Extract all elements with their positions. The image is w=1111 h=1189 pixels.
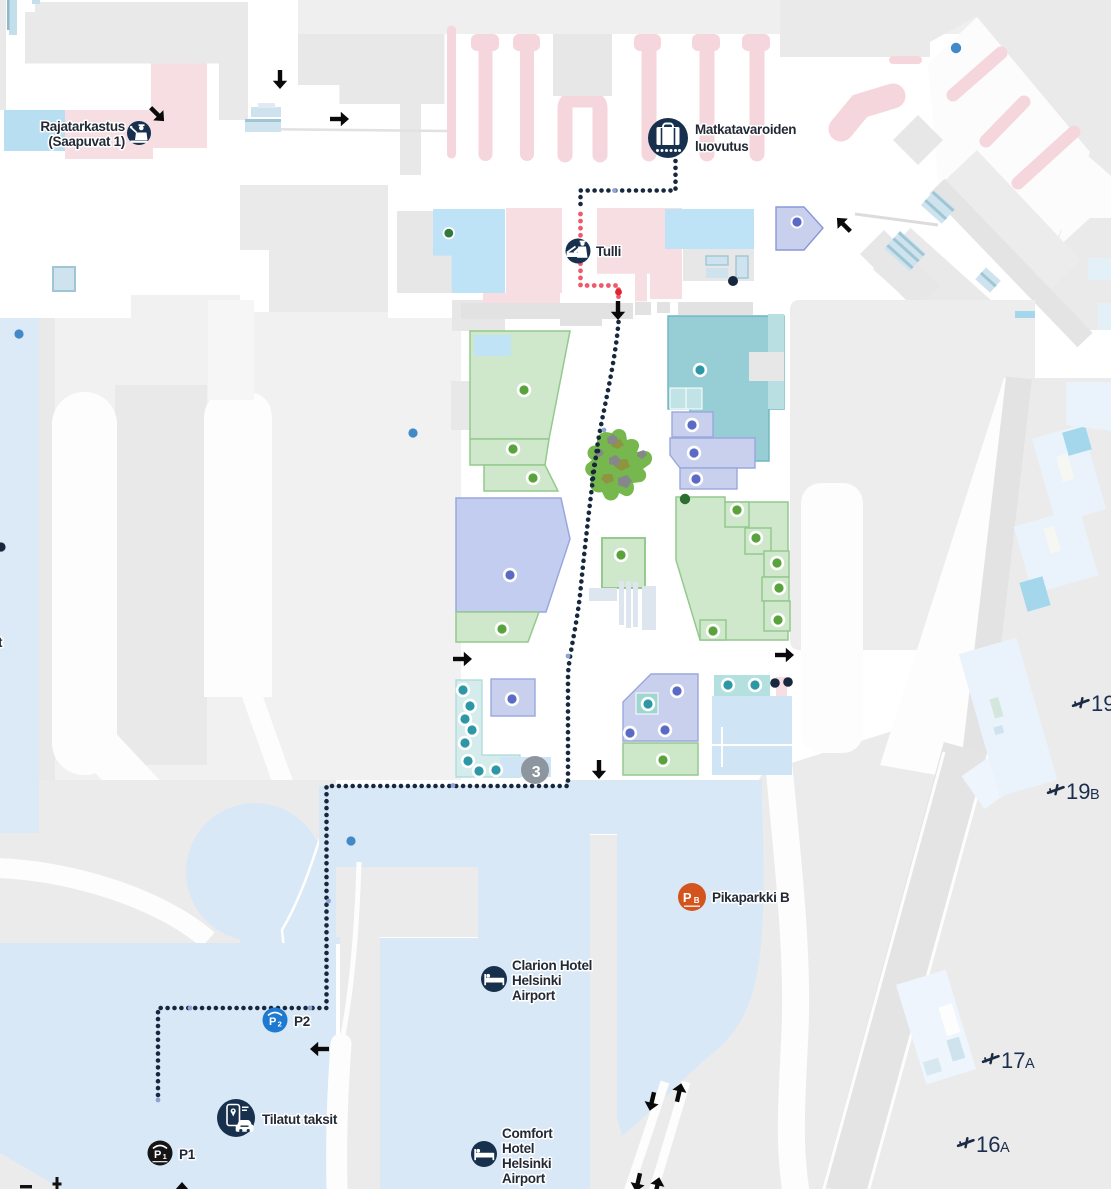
svg-text:Pikaparkki B: Pikaparkki B — [712, 890, 790, 905]
svg-text:B: B — [694, 896, 700, 905]
svg-text:Matkatavaroiden: Matkatavaroiden — [695, 122, 796, 137]
svg-text:2: 2 — [278, 1020, 282, 1029]
svg-text:17: 17 — [1001, 1048, 1025, 1073]
svg-text:Hotel: Hotel — [502, 1141, 534, 1156]
svg-text:Tilatut taksit: Tilatut taksit — [262, 1112, 338, 1127]
svg-text:Tulli: Tulli — [596, 244, 621, 259]
svg-text:P: P — [683, 890, 692, 905]
svg-text:Comfort: Comfort — [502, 1126, 553, 1141]
svg-text:(Saapuvat 1): (Saapuvat 1) — [48, 134, 125, 149]
svg-text:P: P — [269, 1016, 276, 1028]
svg-text:3: 3 — [532, 764, 541, 781]
svg-text:Helsinki: Helsinki — [502, 1156, 551, 1171]
svg-text:P: P — [154, 1149, 161, 1161]
svg-text:16: 16 — [976, 1132, 1000, 1157]
svg-text:19: 19 — [1066, 779, 1090, 804]
svg-text:A: A — [1000, 1140, 1010, 1156]
svg-text:A: A — [1025, 1056, 1035, 1072]
svg-text:Airport: Airport — [502, 1171, 546, 1186]
svg-text:P1: P1 — [179, 1147, 196, 1162]
svg-text:Helsinki: Helsinki — [512, 973, 561, 988]
svg-text:Airport: Airport — [512, 988, 556, 1003]
svg-text:P2: P2 — [294, 1014, 310, 1029]
svg-text:1: 1 — [163, 1152, 167, 1161]
svg-text:19: 19 — [1091, 691, 1111, 716]
svg-text:Clarion Hotel: Clarion Hotel — [512, 958, 592, 973]
svg-text:Rajatarkastus: Rajatarkastus — [40, 119, 125, 134]
svg-text:luovutus: luovutus — [695, 139, 748, 154]
svg-text:B: B — [1090, 787, 1100, 803]
